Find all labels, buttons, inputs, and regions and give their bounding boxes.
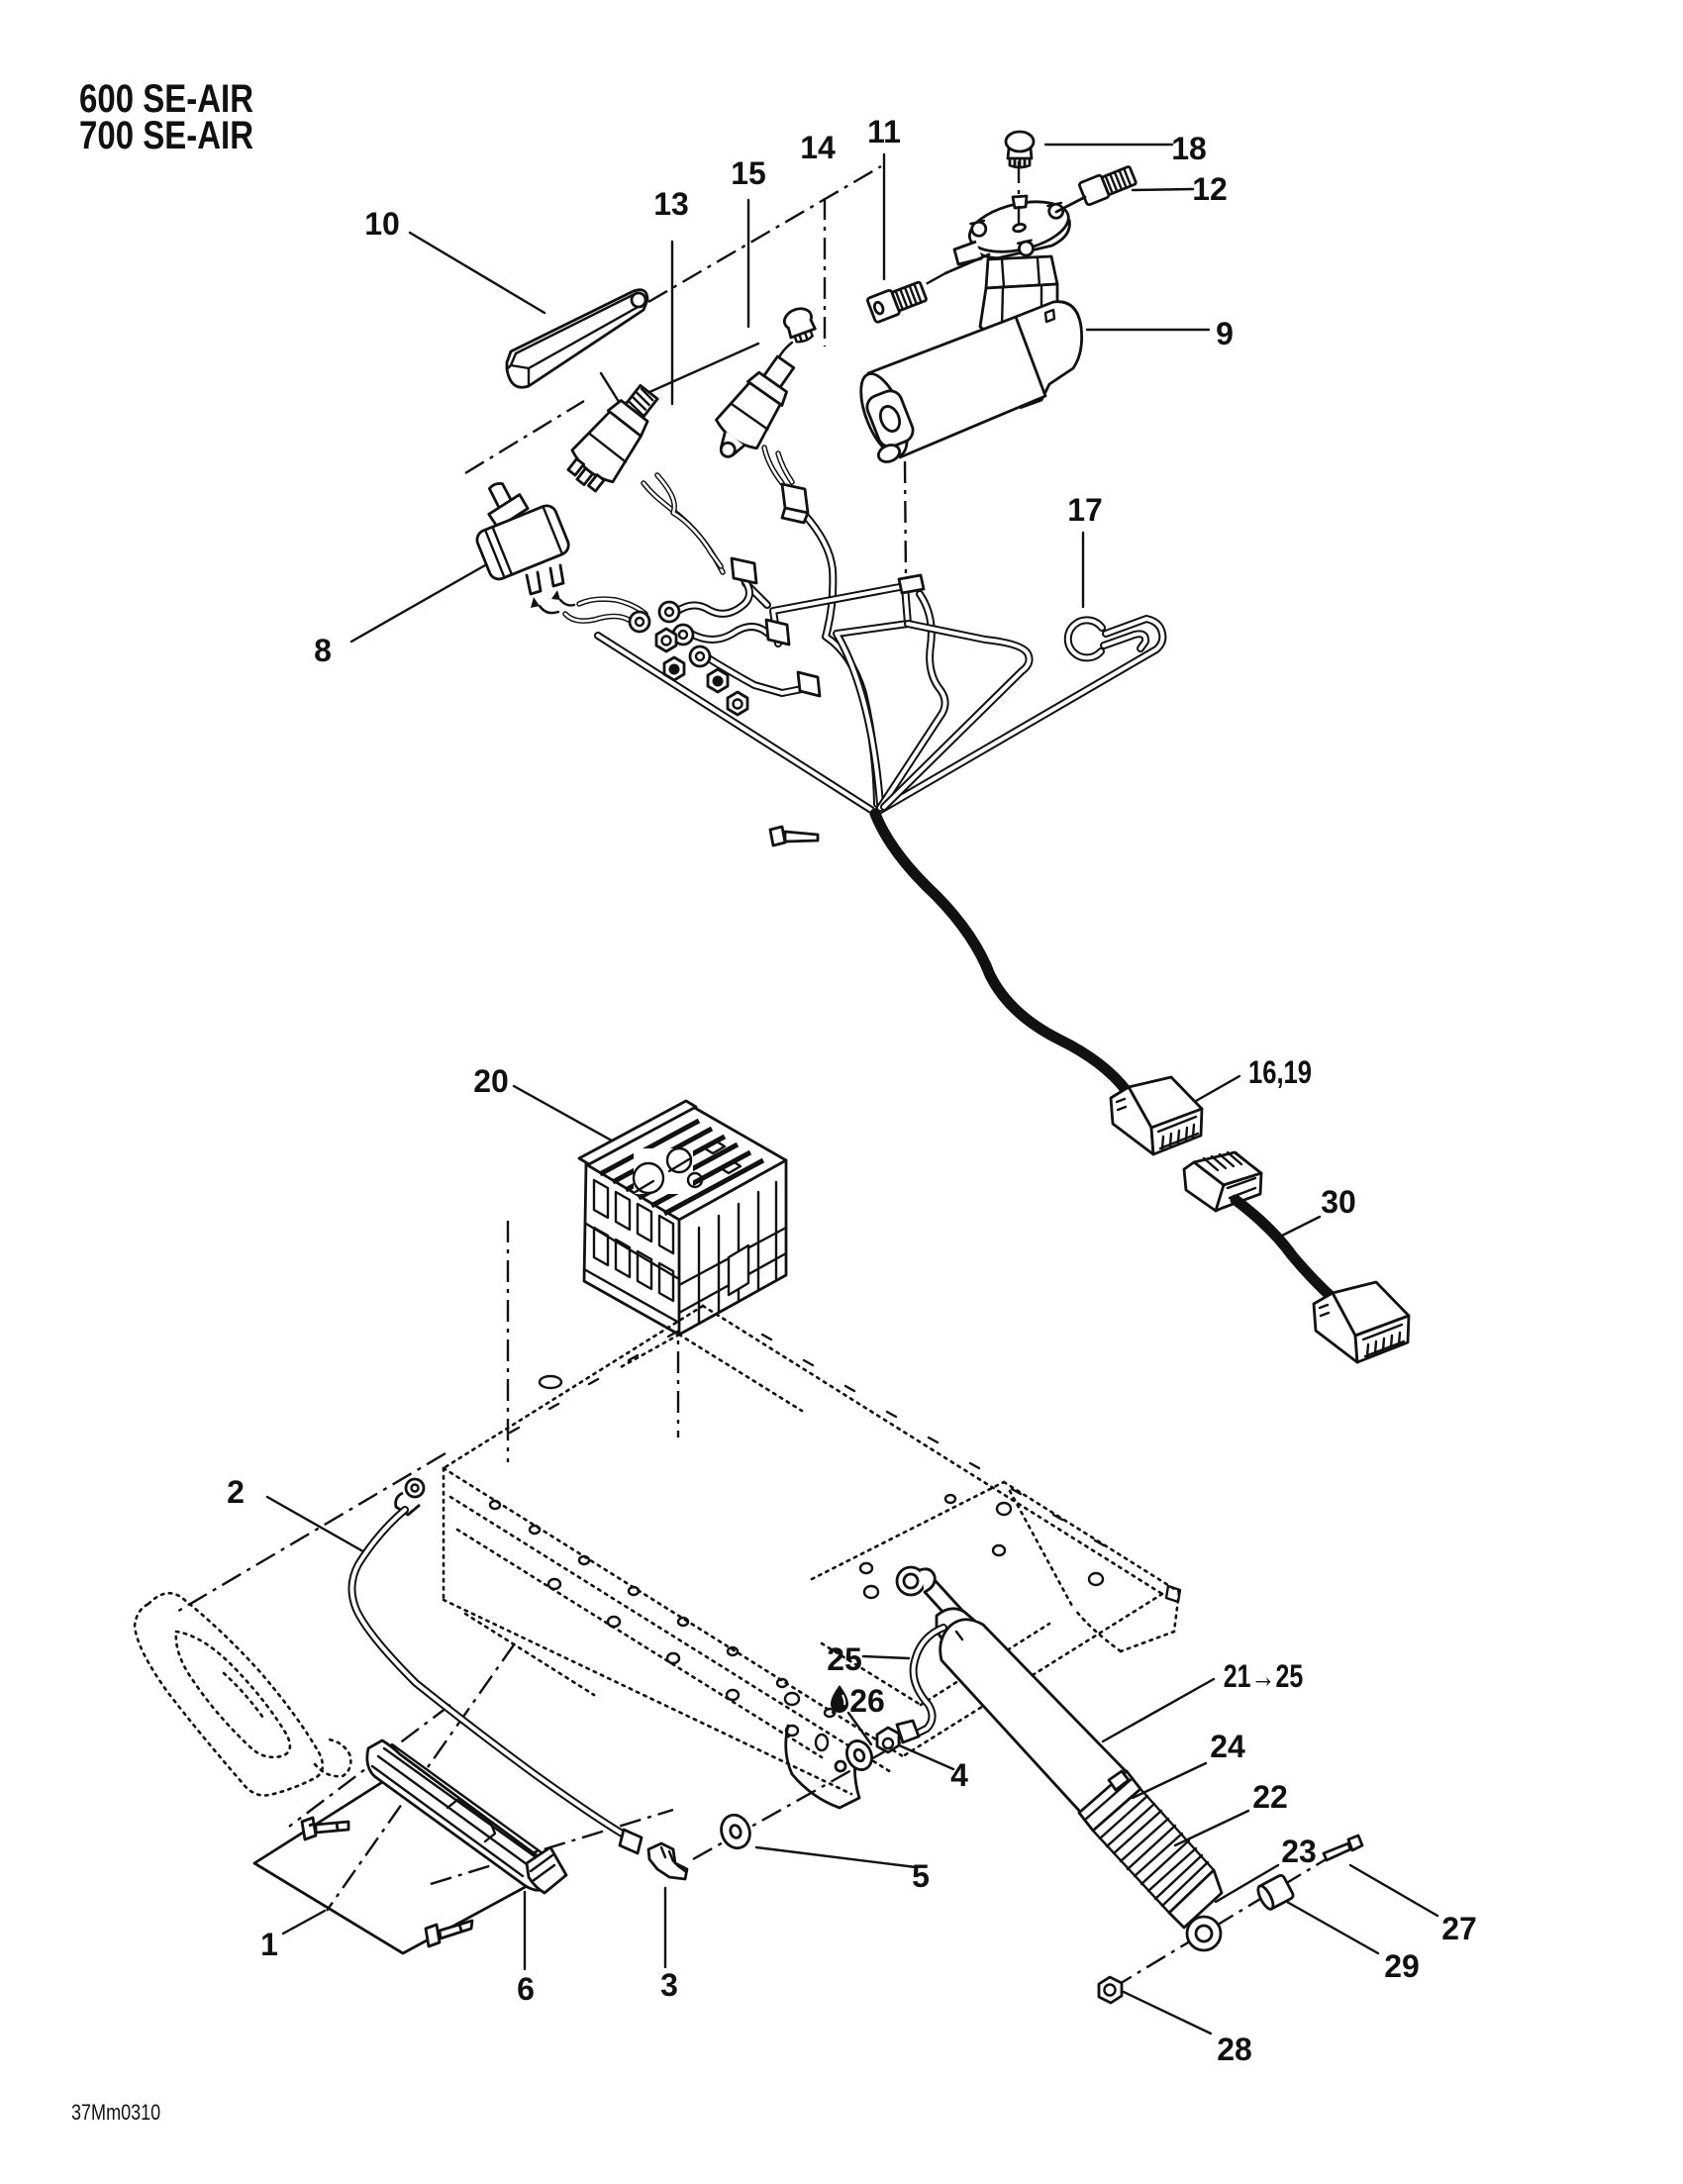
svg-text:23: 23 — [1281, 1834, 1317, 1869]
svg-text:14: 14 — [800, 130, 836, 165]
svg-text:22: 22 — [1252, 1779, 1288, 1815]
svg-text:21→25: 21→25 — [1224, 1659, 1303, 1695]
svg-text:16,19: 16,19 — [1248, 1055, 1312, 1090]
svg-text:30: 30 — [1321, 1184, 1356, 1220]
svg-text:26: 26 — [849, 1683, 885, 1719]
svg-text:6: 6 — [517, 1971, 535, 2007]
svg-text:29: 29 — [1384, 1948, 1420, 1984]
svg-text:17: 17 — [1067, 492, 1103, 528]
svg-text:2: 2 — [227, 1474, 245, 1510]
svg-text:12: 12 — [1192, 171, 1228, 207]
svg-text:18: 18 — [1171, 131, 1207, 166]
svg-text:28: 28 — [1217, 2032, 1252, 2067]
svg-text:27: 27 — [1441, 1911, 1477, 1946]
svg-text:11: 11 — [867, 114, 901, 149]
svg-text:3: 3 — [660, 1967, 678, 2003]
svg-text:37Mm0310: 37Mm0310 — [71, 2101, 160, 2125]
svg-text:8: 8 — [314, 633, 332, 668]
svg-text:5: 5 — [912, 1858, 930, 1894]
svg-text:9: 9 — [1216, 316, 1234, 351]
svg-text:1: 1 — [260, 1927, 278, 1962]
svg-text:24: 24 — [1210, 1729, 1245, 1764]
svg-text:15: 15 — [731, 155, 766, 191]
svg-text:700 SE-AIR: 700 SE-AIR — [79, 113, 253, 157]
svg-text:20: 20 — [473, 1063, 509, 1099]
svg-text:10: 10 — [364, 206, 400, 242]
svg-text:25: 25 — [827, 1641, 862, 1677]
svg-text:4: 4 — [950, 1757, 968, 1793]
svg-text:13: 13 — [653, 186, 689, 222]
